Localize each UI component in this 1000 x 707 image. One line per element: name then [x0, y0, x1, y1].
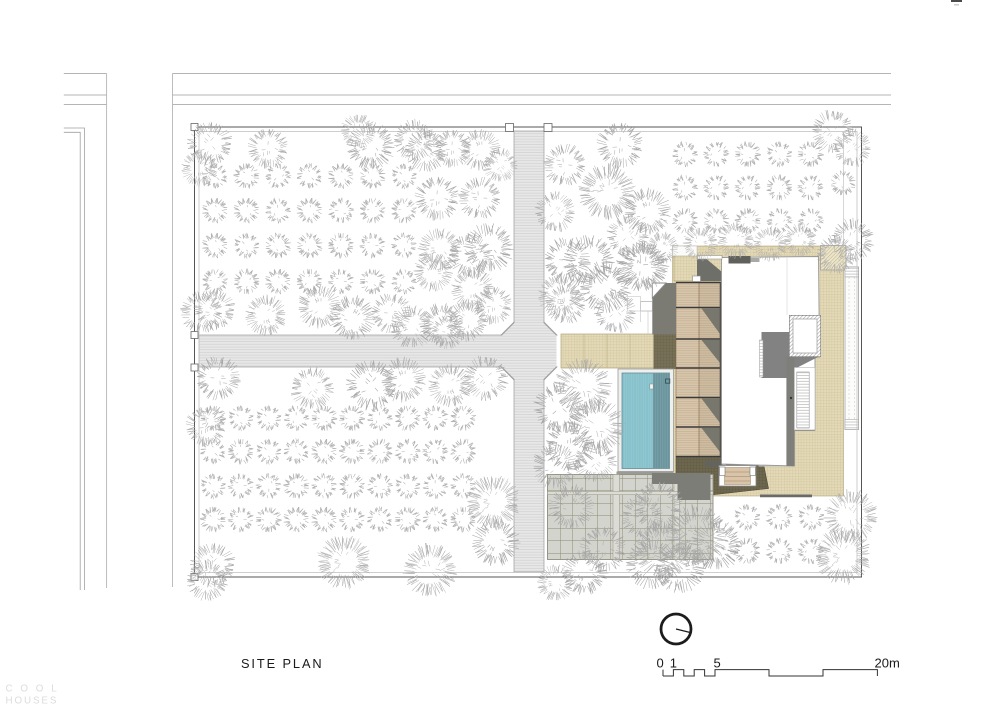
svg-text:SITE PLAN: SITE PLAN: [241, 656, 324, 671]
svg-text:HOUSES: HOUSES: [6, 696, 59, 707]
svg-text:20m: 20m: [875, 656, 900, 671]
svg-text:0: 0: [657, 656, 664, 671]
svg-text:5: 5: [714, 656, 721, 671]
svg-text:COOL: COOL: [6, 684, 65, 695]
svg-text:1: 1: [670, 656, 677, 671]
